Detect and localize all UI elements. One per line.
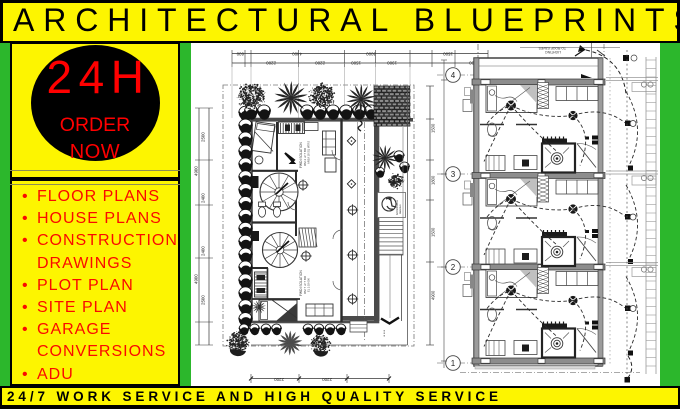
svg-text:1500: 1500 [351, 61, 361, 66]
svg-text:2: 2 [451, 263, 456, 272]
svg-text:4: 4 [451, 71, 456, 80]
svg-text:2200: 2200 [266, 61, 276, 66]
svg-text:1900: 1900 [387, 61, 397, 66]
svg-text:1: 1 [451, 359, 456, 368]
svg-text:e e e: e e e [383, 330, 387, 337]
svg-text:RM 7 of 7 BR: RM 7 of 7 BR [303, 275, 307, 294]
svg-text:AREA 18 SQ MTRS: AREA 18 SQ MTRS [307, 141, 311, 164]
svg-text:1800: 1800 [431, 175, 436, 185]
svg-text:2200: 2200 [315, 61, 325, 66]
svg-text:2400: 2400 [201, 193, 206, 203]
svg-text:PARKING: PARKING [399, 204, 402, 214]
svg-text:3000: 3000 [366, 51, 376, 56]
svg-text:EL 1:18 000: EL 1:18 000 [307, 278, 311, 292]
svg-text:LIGHTING: LIGHTING [545, 50, 561, 54]
svg-text:2500: 2500 [201, 295, 206, 305]
svg-text:ACCESSIBLE: ACCESSIBLE [396, 200, 399, 215]
svg-text:4900: 4900 [431, 290, 436, 300]
svg-text:1500: 1500 [443, 51, 453, 56]
svg-text:2500: 2500 [201, 132, 206, 142]
svg-text:2200: 2200 [322, 377, 332, 382]
svg-text:RM 2 of 7 BR: RM 2 of 7 BR [303, 147, 307, 166]
svg-text:2200: 2200 [274, 377, 284, 382]
svg-text:1500: 1500 [431, 227, 436, 237]
svg-text:4900: 4900 [194, 274, 199, 284]
svg-text:600: 600 [236, 51, 244, 56]
svg-text:3: 3 [451, 170, 456, 179]
svg-text:4900: 4900 [194, 166, 199, 176]
svg-text:1500: 1500 [431, 123, 436, 133]
svg-text:4400: 4400 [292, 51, 302, 56]
svg-text:TO ROOF EAVES: TO ROOF EAVES [538, 46, 566, 50]
svg-text:2400: 2400 [201, 246, 206, 256]
